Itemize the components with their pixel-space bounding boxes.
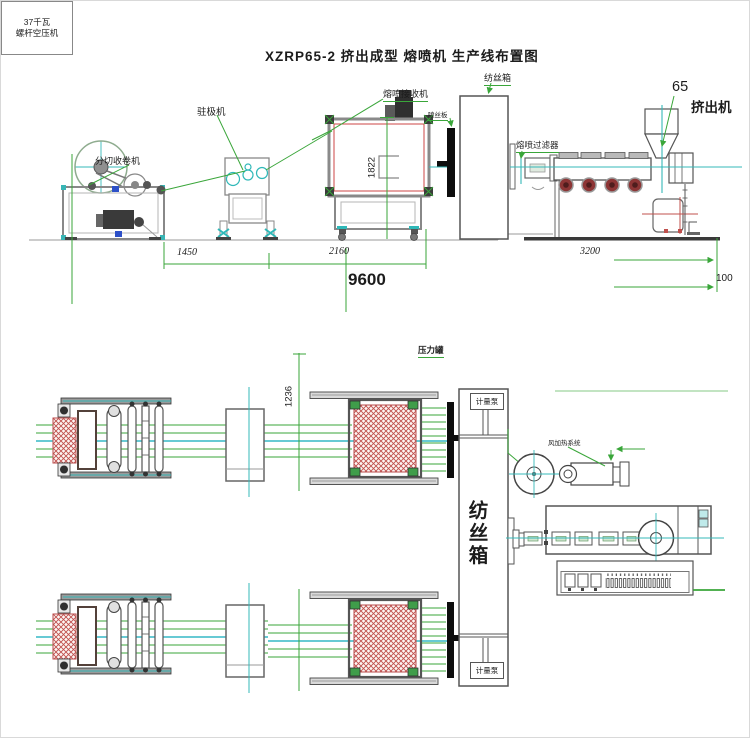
receiver-side-view xyxy=(325,90,433,241)
receiver-plan-1 xyxy=(268,389,461,491)
label-meltblown-receiver: 熔喷接收机 xyxy=(383,87,428,102)
dim-1236: 1236 xyxy=(284,375,295,419)
label-spinning-box-plan: 纺丝箱 xyxy=(462,500,491,568)
label-extruder: 挤出机 xyxy=(691,96,732,116)
dim-1450: 1450 xyxy=(177,247,197,258)
winder-plan-2 xyxy=(36,583,268,693)
label-pressure-tank: 压力罐 xyxy=(418,344,444,358)
dim-100: 100 xyxy=(716,273,733,284)
drawing-canvas: XZRP65-2 挤出成型 熔喷机 生产线布置图 纺丝箱 熔喷接收机 驻极机 分… xyxy=(0,0,750,738)
metering-pump-top-box: 计量泵 xyxy=(470,393,504,410)
control-panel-plan xyxy=(557,561,725,595)
label-air-heating-system: 风加热系统 xyxy=(548,437,581,447)
label-spinning-box-side: 纺丝箱 xyxy=(484,71,511,86)
winder-plan-1 xyxy=(36,387,268,497)
spinneret-side-view xyxy=(437,128,455,197)
extruder-plan xyxy=(506,506,724,564)
dim-9600: 9600 xyxy=(348,270,386,290)
label-slitting-winder: 分切收卷机 xyxy=(95,154,140,167)
dim-3200: 3200 xyxy=(580,246,600,257)
page-title: XZRP65-2 挤出成型 熔喷机 生产线布置图 xyxy=(265,45,539,65)
dimension-1236-line xyxy=(293,353,306,390)
dim-2160: 2160 xyxy=(329,246,349,257)
label-melt-filter: 熔喷过滤器 xyxy=(516,139,559,153)
spinning-box-side-view xyxy=(460,96,508,239)
label-spinneret-plate: 喷丝板 xyxy=(428,109,448,121)
electret-side-view xyxy=(216,158,278,240)
label-extruder-size: 65 xyxy=(672,79,688,95)
metering-pump-bottom-box: 计量泵 xyxy=(470,662,504,679)
label-electret-machine: 驻极机 xyxy=(197,104,226,118)
dim-1822: 1822 xyxy=(367,148,378,188)
cad-line-art xyxy=(1,1,749,737)
extruder-side-view xyxy=(554,109,700,237)
receiver-plan-2 xyxy=(268,589,461,691)
